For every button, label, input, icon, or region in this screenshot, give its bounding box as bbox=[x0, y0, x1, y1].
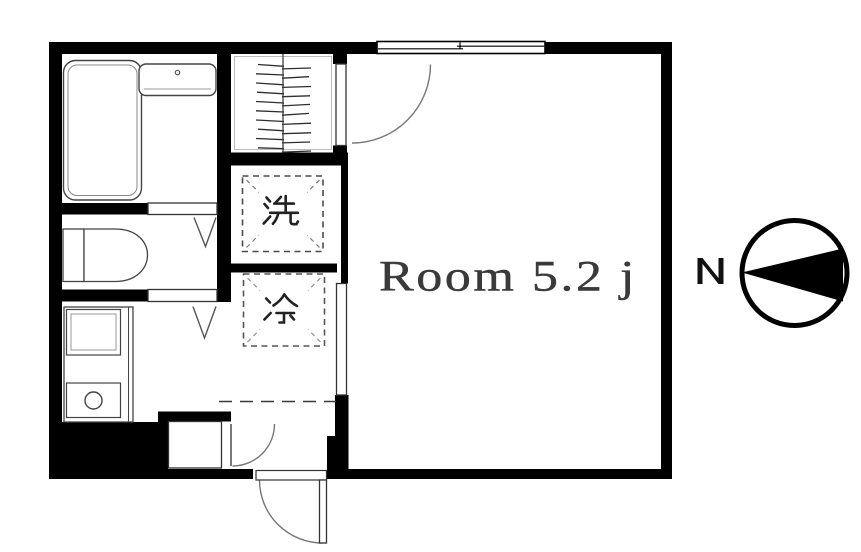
svg-text:Room 5.2 j: Room 5.2 j bbox=[379, 253, 637, 301]
